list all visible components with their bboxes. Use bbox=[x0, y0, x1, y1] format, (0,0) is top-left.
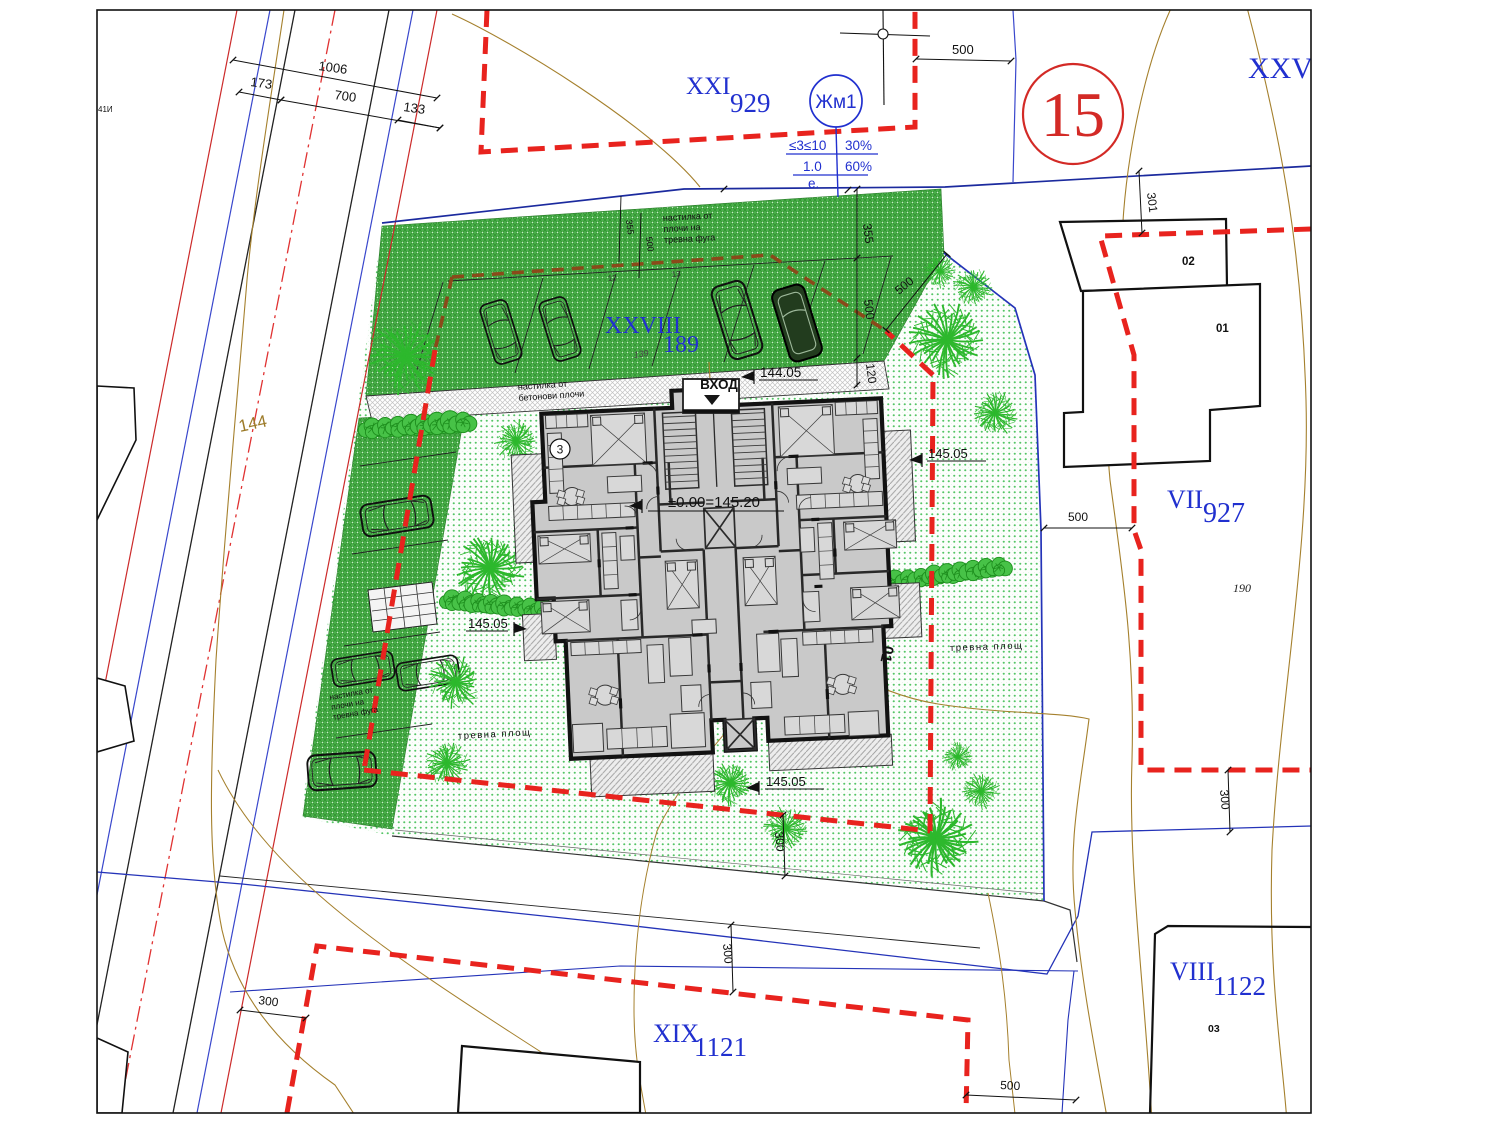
svg-text:300: 300 bbox=[720, 943, 736, 964]
svg-text:XIX: XIX bbox=[653, 1019, 699, 1048]
svg-text:01: 01 bbox=[877, 644, 897, 664]
svg-text:189: 189 bbox=[663, 332, 699, 358]
svg-text:355: 355 bbox=[624, 219, 636, 235]
svg-text:190: 190 bbox=[1233, 581, 1251, 595]
svg-text:3: 3 bbox=[557, 443, 564, 457]
svg-text:15: 15 bbox=[1041, 79, 1105, 150]
svg-text:1122: 1122 bbox=[1213, 971, 1266, 1001]
svg-text:145.05: 145.05 bbox=[766, 774, 806, 789]
svg-text:173: 173 bbox=[250, 74, 274, 92]
svg-text:500: 500 bbox=[952, 42, 974, 57]
svg-text:500: 500 bbox=[1000, 1078, 1021, 1093]
svg-text:≤3≤10: ≤3≤10 bbox=[789, 138, 826, 153]
svg-text:929: 929 bbox=[730, 88, 771, 118]
svg-text:120: 120 bbox=[863, 363, 879, 385]
svg-text:500: 500 bbox=[861, 299, 877, 321]
svg-text:145.05: 145.05 bbox=[468, 616, 508, 631]
svg-text:ВХОД: ВХОД bbox=[700, 377, 738, 392]
svg-text:133: 133 bbox=[403, 99, 427, 117]
svg-text:41И: 41И bbox=[98, 105, 113, 114]
svg-text:139: 139 bbox=[633, 348, 649, 360]
svg-text:1121: 1121 bbox=[694, 1032, 747, 1062]
svg-text:13: 13 bbox=[671, 269, 681, 279]
svg-text:Жм1: Жм1 bbox=[815, 92, 856, 113]
svg-text:XXI: XXI bbox=[686, 73, 730, 100]
svg-text:03: 03 bbox=[1208, 1023, 1220, 1035]
svg-text:144.05: 144.05 bbox=[760, 365, 801, 380]
svg-text:02: 02 bbox=[1182, 256, 1195, 268]
svg-text:1.0: 1.0 bbox=[803, 159, 822, 174]
svg-text:355: 355 bbox=[860, 223, 876, 245]
svg-text:30%: 30% bbox=[845, 138, 872, 153]
svg-text:500: 500 bbox=[1068, 510, 1088, 524]
svg-text:±0.00=145.20: ±0.00=145.20 bbox=[668, 494, 760, 511]
svg-text:927: 927 bbox=[1203, 498, 1245, 529]
svg-text:е.: е. bbox=[808, 176, 819, 191]
svg-text:145.05: 145.05 bbox=[928, 446, 968, 461]
svg-text:300: 300 bbox=[772, 831, 788, 852]
svg-text:300: 300 bbox=[1217, 789, 1233, 810]
svg-text:700: 700 bbox=[334, 87, 358, 105]
svg-text:500: 500 bbox=[644, 236, 656, 252]
svg-text:12: 12 bbox=[607, 273, 617, 283]
svg-text:VIII: VIII bbox=[1170, 957, 1215, 986]
svg-text:VII: VII bbox=[1167, 485, 1203, 514]
svg-text:60%: 60% bbox=[845, 159, 872, 174]
svg-text:01: 01 bbox=[1216, 323, 1229, 335]
svg-text:плочи на: плочи на bbox=[663, 222, 701, 234]
svg-text:301: 301 bbox=[1144, 192, 1160, 214]
svg-text:300: 300 bbox=[258, 993, 280, 1009]
